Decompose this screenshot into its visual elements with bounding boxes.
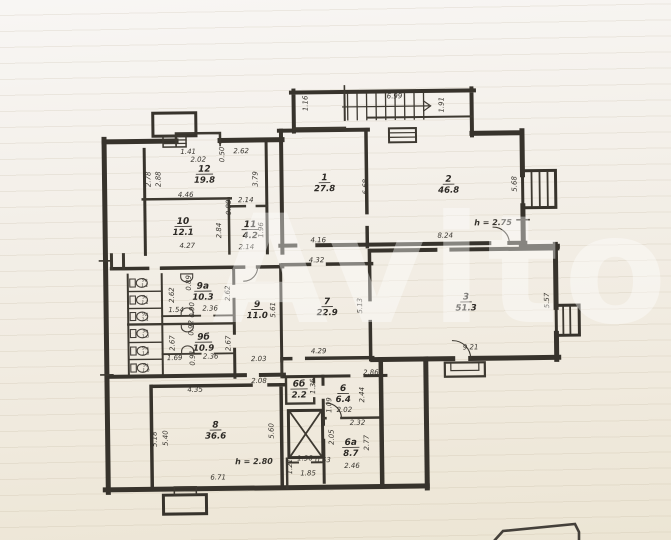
- dim-label: 6.71: [210, 473, 226, 481]
- dim-label: 2.02: [336, 406, 352, 414]
- room-number: 8: [212, 420, 218, 430]
- dim-label: 1.36: [297, 454, 313, 462]
- dim-label: 2.62: [168, 287, 176, 303]
- height-note: h = 2.80: [235, 457, 273, 466]
- dim-label: 0.92: [187, 319, 195, 335]
- dim-label: 1.54: [168, 306, 184, 314]
- room-number: 6: [340, 384, 346, 394]
- dim-label: 2.67: [168, 335, 176, 351]
- room-number: 6а: [345, 438, 357, 448]
- stair-direction-arrow: [343, 101, 431, 112]
- document-frame-corner: [494, 524, 579, 540]
- room-area: 10.3: [192, 293, 213, 303]
- dim-label: 5.18: [151, 431, 159, 447]
- elevator-shaft: [288, 410, 323, 457]
- dim-label: 2.46: [344, 462, 360, 470]
- stall-area: 1.1: [141, 300, 148, 306]
- dim-label: 1.09: [325, 397, 333, 413]
- dim-label: 6.99: [387, 92, 403, 100]
- room-area: 10.9: [193, 344, 214, 354]
- dim-label: 1.91: [438, 97, 446, 113]
- dim-label: 2.05: [328, 429, 336, 445]
- dim-label: 2.32: [350, 419, 366, 427]
- dim-label: 4.46: [178, 191, 194, 199]
- dim-label: 1.41: [180, 148, 196, 156]
- stall-number: 9е: [142, 328, 148, 334]
- room-number: 10: [177, 217, 190, 227]
- avito-watermark: Avito: [212, 184, 671, 358]
- dim-label: 1.69: [167, 354, 183, 362]
- dim-label: 0.90: [188, 301, 196, 317]
- room-area: 2.2: [291, 390, 306, 400]
- room-number: 6б: [293, 378, 306, 389]
- floor-plan-photo: 1.166.991.911.412.020.502.622.782.883.79…: [0, 0, 671, 540]
- dim-label: 2.88: [154, 171, 162, 187]
- stall-area: 1.1: [142, 317, 149, 323]
- room-area: 6.4: [336, 395, 351, 405]
- room-number: 12: [198, 165, 211, 175]
- stall-area: 1.1: [141, 283, 148, 289]
- dim-label: 2.77: [363, 434, 371, 450]
- dim-label: 5.40: [162, 430, 170, 446]
- dim-label: 0.50: [218, 146, 226, 162]
- dim-label: 1.36: [309, 378, 317, 394]
- dim-label: 0.63: [315, 456, 331, 464]
- stall-number: 9г: [142, 294, 148, 300]
- stall-area: 1.0: [142, 334, 149, 340]
- stall-number: 9в: [142, 277, 148, 283]
- stall-area: 1.0: [142, 351, 149, 357]
- dim-label: 1.16: [301, 95, 309, 111]
- dim-label: 2.78: [144, 171, 152, 187]
- stall-number: 9д: [142, 311, 148, 317]
- room-number: 9б: [197, 332, 210, 343]
- room-area: 36.6: [205, 431, 226, 441]
- room-number: 1: [321, 173, 327, 183]
- room-number: 9а: [197, 282, 209, 292]
- dim-label: 2.44: [358, 387, 366, 403]
- stall-number: 9з: [143, 362, 149, 368]
- dim-label: 5.60: [267, 422, 275, 438]
- stall-area: 1.0: [142, 368, 149, 374]
- stall-number: 9ж: [142, 345, 150, 351]
- floor-plan-drawing: 1.166.991.911.412.020.502.622.782.883.79…: [0, 0, 671, 540]
- dim-label: 4.35: [187, 386, 203, 394]
- porch-room3: [445, 362, 485, 376]
- dim-label: 4.27: [179, 242, 195, 250]
- dim-label: 2.62: [233, 147, 249, 155]
- dim-label: 1.21: [286, 459, 294, 475]
- dim-label: 2.08: [251, 377, 267, 385]
- room-area: 8.7: [343, 449, 358, 459]
- dim-label: 0.89: [185, 274, 193, 290]
- dim-label: 2.86: [363, 369, 379, 377]
- dim-label: 1.85: [300, 469, 316, 477]
- room-area: 12.1: [172, 228, 193, 238]
- porch-stairwell: [389, 128, 416, 142]
- dim-label: 2.02: [190, 156, 206, 164]
